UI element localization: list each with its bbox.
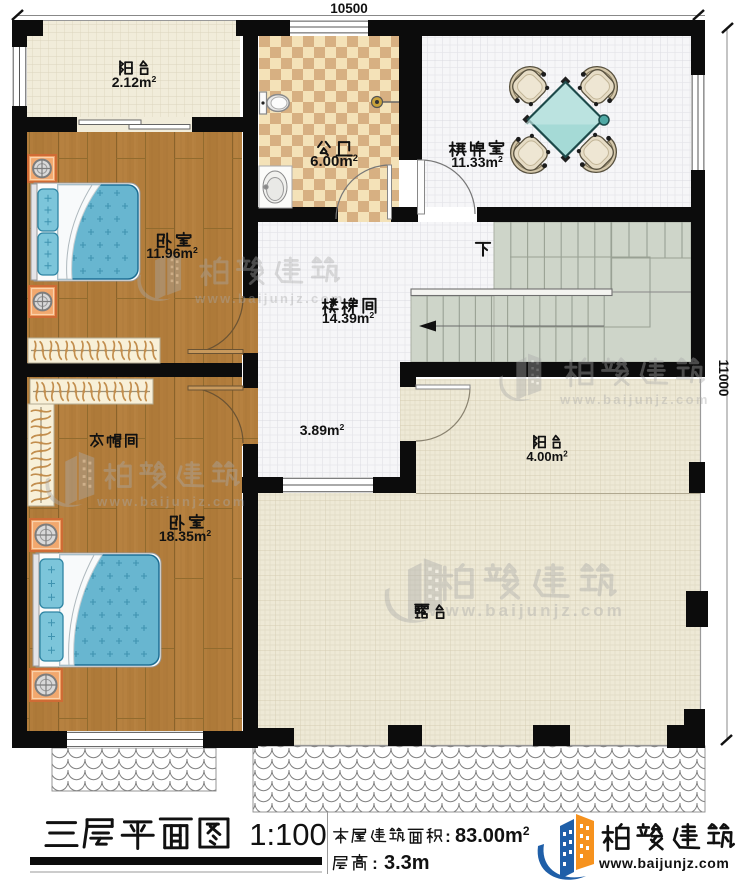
svg-text::: : (372, 854, 378, 873)
svg-text:www.baijunjz.com: www.baijunjz.com (598, 855, 729, 871)
svg-text:11000: 11000 (716, 360, 731, 397)
svg-text:4.00m2: 4.00m2 (526, 449, 568, 464)
svg-text:14.39m2: 14.39m2 (322, 310, 374, 326)
svg-text:www.baijunjz.com: www.baijunjz.com (194, 291, 345, 306)
svg-text:18.35m2: 18.35m2 (159, 528, 211, 544)
svg-text:2.12m2: 2.12m2 (112, 74, 157, 90)
svg-text:6.00m2: 6.00m2 (310, 153, 358, 170)
svg-text:11.33m2: 11.33m2 (451, 154, 503, 170)
svg-text:3.3m: 3.3m (384, 852, 430, 874)
svg-text::: : (445, 827, 451, 846)
svg-text:www.baijunjz.com: www.baijunjz.com (428, 601, 625, 620)
svg-text:83.00m2: 83.00m2 (455, 824, 530, 847)
svg-text:10500: 10500 (330, 1, 368, 16)
svg-text:www.baijunjz.com: www.baijunjz.com (559, 392, 710, 407)
svg-text:11.96m2: 11.96m2 (146, 245, 198, 261)
svg-text:1:100: 1:100 (249, 817, 327, 852)
svg-text:www.baijunjz.com: www.baijunjz.com (96, 494, 247, 509)
svg-text:3.89m2: 3.89m2 (300, 422, 345, 438)
